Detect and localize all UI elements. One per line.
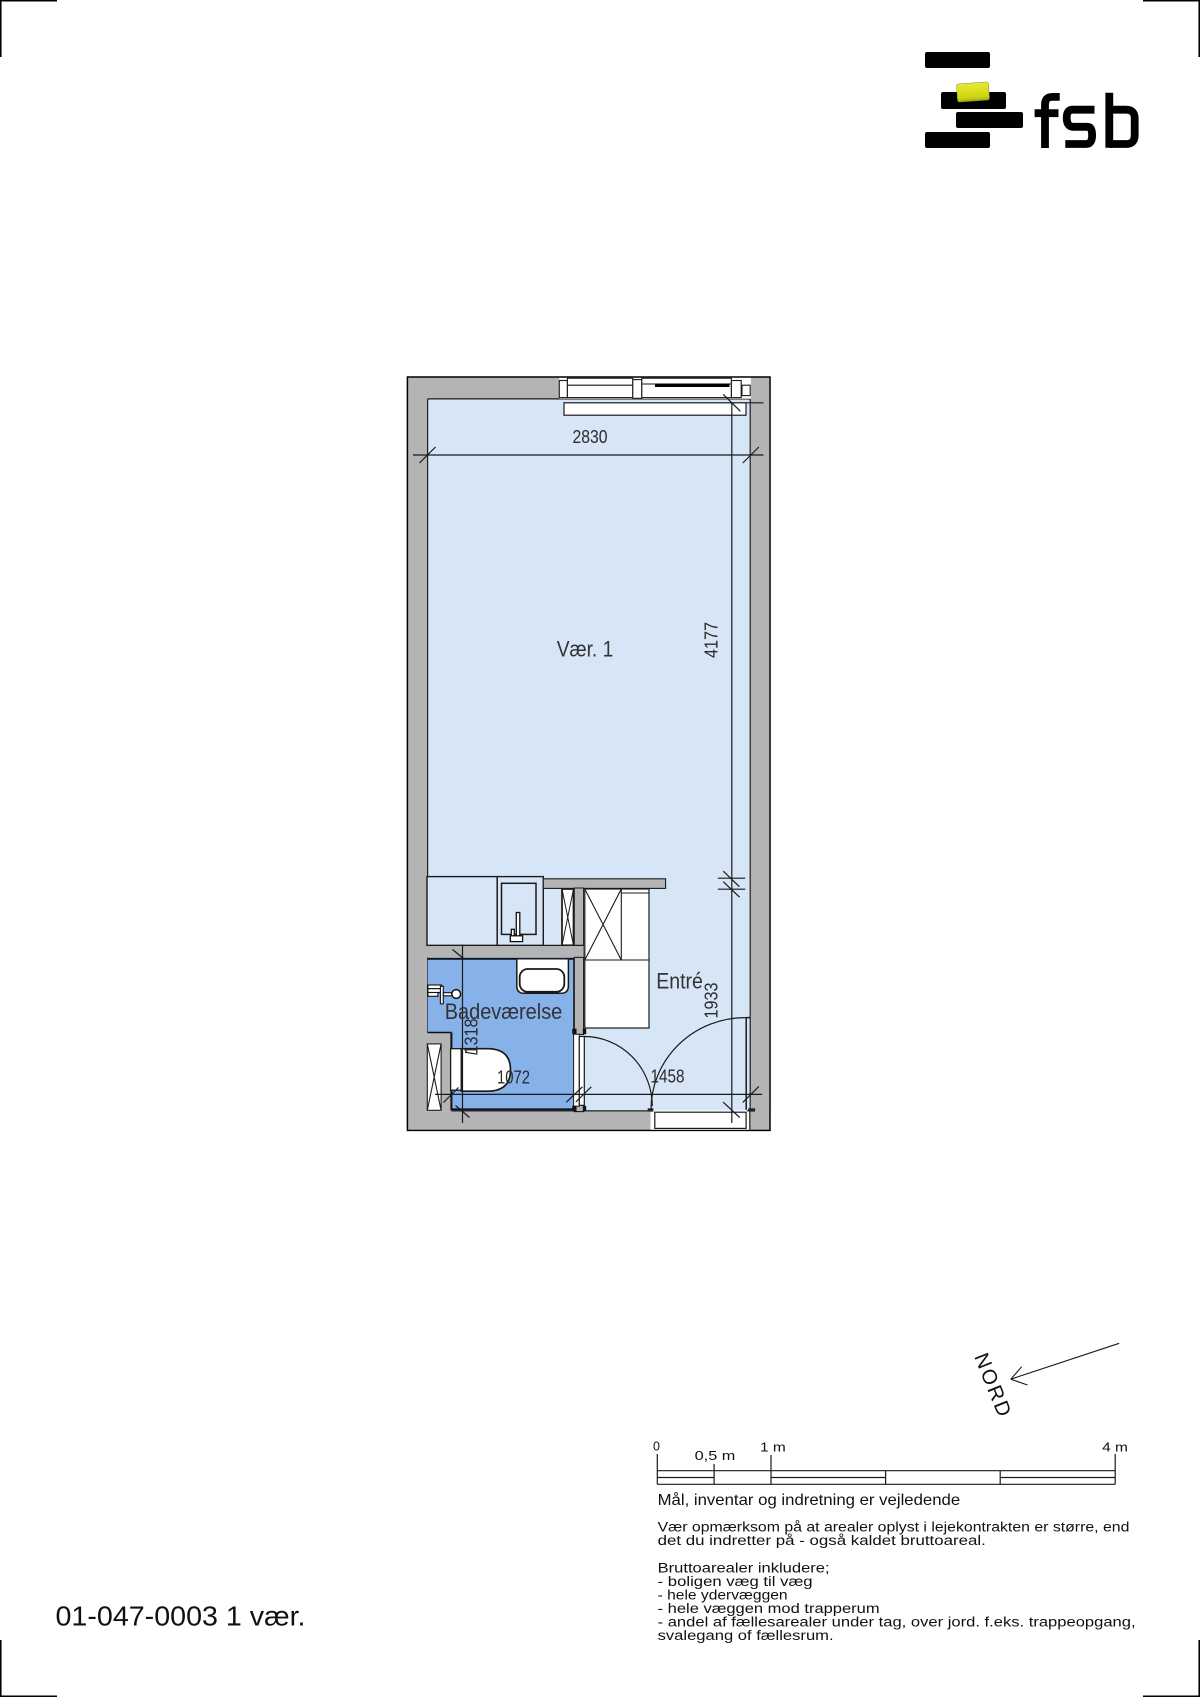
- svg-text:2830: 2830: [573, 427, 608, 447]
- svg-text:1 m: 1 m: [760, 1440, 786, 1454]
- svg-text:Vær. 1: Vær. 1: [557, 637, 614, 662]
- svg-text:NORD: NORD: [969, 1350, 1016, 1422]
- svg-text:1072: 1072: [497, 1068, 530, 1088]
- svg-text:svalegang of fællesrum.: svalegang of fællesrum.: [658, 1628, 834, 1643]
- svg-text:det du indretter på - også kal: det du indretter på - også kaldet brutto…: [658, 1533, 986, 1548]
- svg-text:4177: 4177: [702, 622, 722, 658]
- svg-text:Mål, inventar og indretning er: Mål, inventar og indretning er vejledend…: [658, 1491, 961, 1509]
- svg-text:01-047-0003 1 vær.: 01-047-0003 1 vær.: [56, 1601, 306, 1632]
- svg-text:4 m: 4 m: [1102, 1440, 1128, 1454]
- svg-text:Entré: Entré: [656, 969, 703, 994]
- svg-text:0: 0: [653, 1440, 661, 1454]
- svg-text:1933: 1933: [702, 983, 722, 1019]
- svg-text:Badeværelse: Badeværelse: [445, 999, 563, 1024]
- svg-text:0,5 m: 0,5 m: [695, 1449, 736, 1463]
- svg-text:1458: 1458: [651, 1067, 685, 1087]
